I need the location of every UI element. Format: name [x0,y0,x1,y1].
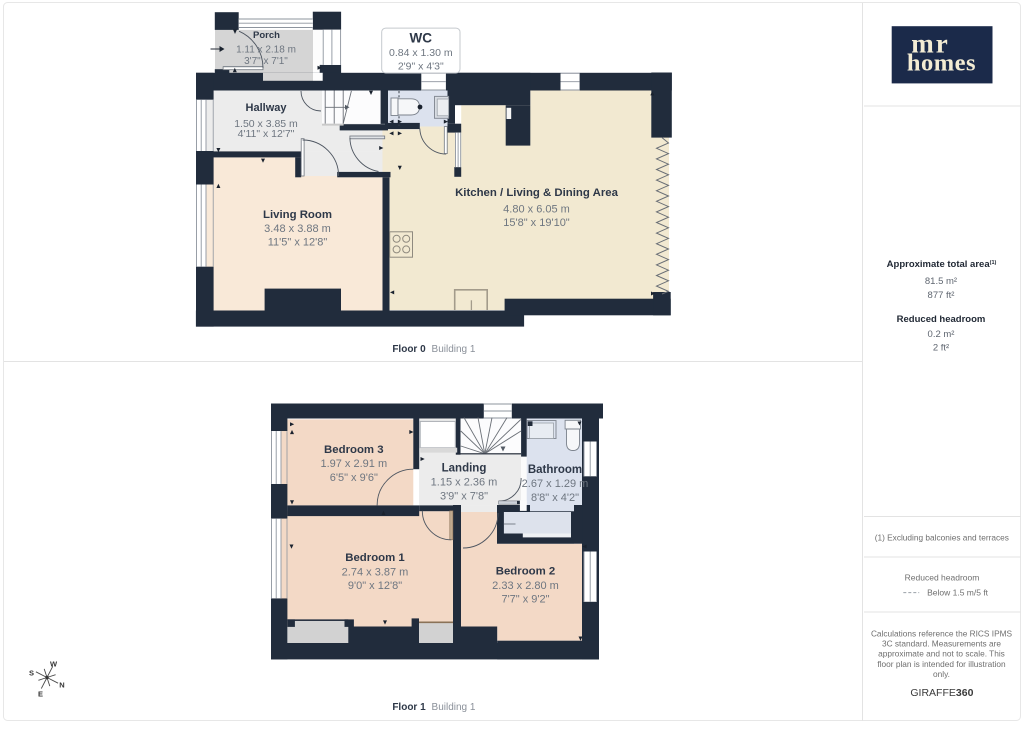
svg-text:Approximate total area(1): Approximate total area(1) [887,259,997,270]
svg-text:2.67 x 1.29 m: 2.67 x 1.29 m [522,478,589,490]
svg-text:1.15 x 2.36 m: 1.15 x 2.36 m [431,477,498,489]
svg-text:Reduced headroom: Reduced headroom [905,572,980,582]
svg-text:N: N [59,681,64,690]
svg-text:Bedroom 1: Bedroom 1 [345,552,405,564]
svg-text:homes: homes [907,50,976,77]
svg-text:15'8" x 19'10": 15'8" x 19'10" [503,217,570,229]
svg-text:4'11" x 12'7": 4'11" x 12'7" [238,128,295,140]
svg-text:Landing: Landing [442,462,487,474]
svg-text:7'7" x 9'2": 7'7" x 9'2" [501,593,549,605]
svg-text:(1) Excluding balconies and te: (1) Excluding balconies and terraces [875,533,1009,543]
svg-text:3.48 x 3.88 m: 3.48 x 3.88 m [264,223,331,235]
svg-text:Calculations reference the RIC: Calculations reference the RICS IPMS [871,628,1013,638]
svg-text:1.97 x 2.91 m: 1.97 x 2.91 m [320,458,387,470]
svg-text:GIRAFFE360: GIRAFFE360 [910,687,973,699]
svg-text:4.80 x 6.05 m: 4.80 x 6.05 m [503,203,570,215]
svg-text:Porch: Porch [253,30,280,41]
svg-text:9'0" x 12'8": 9'0" x 12'8" [348,580,402,592]
svg-text:3C standard. Measurements are: 3C standard. Measurements are [882,638,1001,648]
svg-text:0.84 x 1.30 m: 0.84 x 1.30 m [389,47,453,59]
svg-text:3'7" x 7'1": 3'7" x 7'1" [244,56,288,67]
svg-text:877 ft²: 877 ft² [928,290,955,301]
svg-text:Bedroom 2: Bedroom 2 [496,566,556,578]
svg-text:1.11 x 2.18 m: 1.11 x 2.18 m [236,44,296,55]
svg-text:6'5" x 9'6": 6'5" x 9'6" [330,472,378,484]
svg-text:W: W [50,660,58,669]
svg-text:2.74 x 3.87 m: 2.74 x 3.87 m [342,567,409,579]
svg-text:only.: only. [933,669,950,679]
svg-text:11'5" x 12'8": 11'5" x 12'8" [268,236,328,248]
svg-text:0.2 m²: 0.2 m² [928,329,955,340]
svg-text:E: E [38,690,43,699]
svg-text:floor plan is intended for ill: floor plan is intended for illustration [877,659,1006,669]
svg-text:2 ft²: 2 ft² [933,342,949,353]
svg-text:Bedroom 3: Bedroom 3 [324,444,384,456]
svg-text:Bathroom: Bathroom [528,464,582,476]
svg-text:3'9" x 7'8": 3'9" x 7'8" [440,491,488,503]
svg-text:Hallway: Hallway [246,102,288,114]
svg-text:Building 1: Building 1 [432,702,476,713]
svg-text:Kitchen / Living & Dining Area: Kitchen / Living & Dining Area [455,187,619,199]
svg-text:2'9" x 4'3": 2'9" x 4'3" [398,61,444,73]
svg-text:2.33 x 2.80 m: 2.33 x 2.80 m [492,580,559,592]
svg-text:Living Room: Living Room [263,209,332,221]
svg-text:S: S [29,669,34,678]
svg-text:81.5 m²: 81.5 m² [925,276,957,287]
svg-text:Below 1.5 m/5 ft: Below 1.5 m/5 ft [927,588,989,598]
svg-text:Building 1: Building 1 [432,344,476,355]
svg-text:8'8" x 4'2": 8'8" x 4'2" [531,492,579,504]
svg-text:approximate and not to scale.: approximate and not to scale. This [878,649,1005,659]
svg-text:Reduced headroom: Reduced headroom [897,314,986,325]
svg-text:Floor 0: Floor 0 [392,344,426,355]
svg-text:WC: WC [410,30,433,45]
svg-text:Floor 1: Floor 1 [392,702,426,713]
